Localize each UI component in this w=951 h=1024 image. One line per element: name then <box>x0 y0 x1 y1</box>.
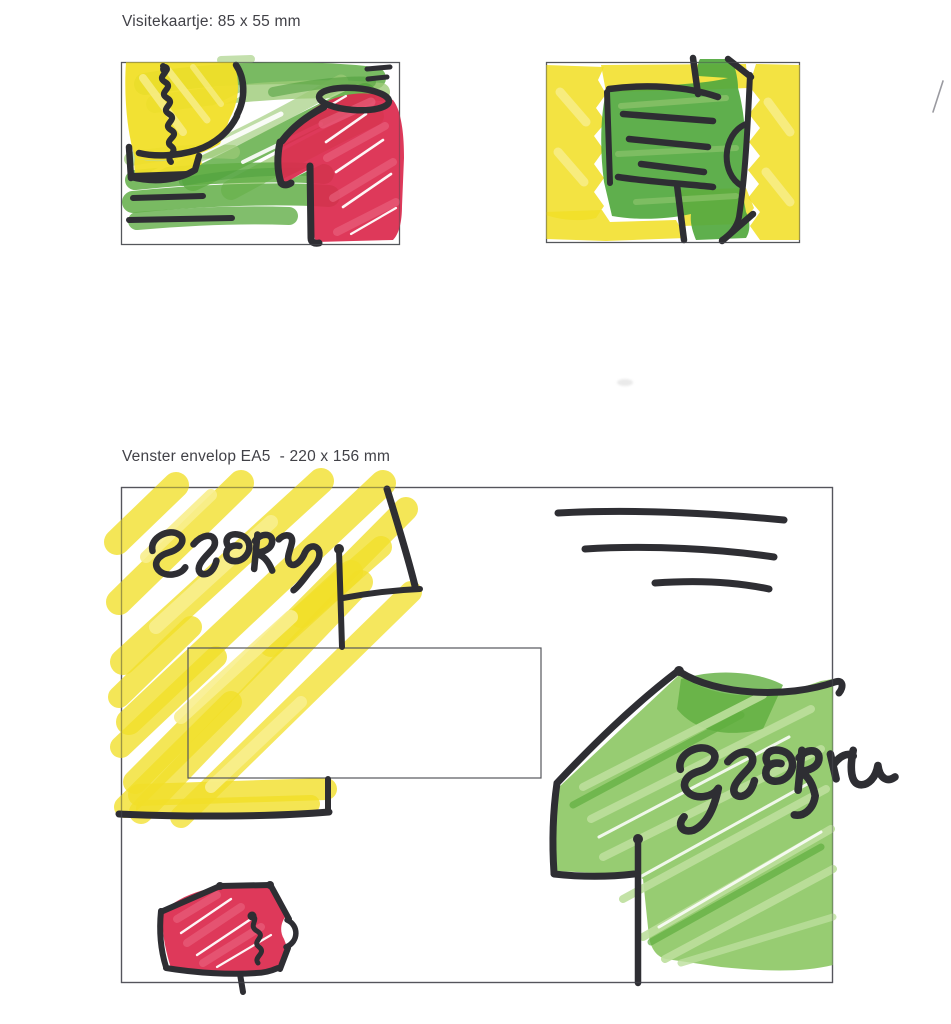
business-card-size-label: Visitekaartje: 85 x 55 mm <box>122 13 301 31</box>
red-tshirt-small-icon <box>160 881 296 992</box>
envelope-size-label: Venster envelop EA5 - 220 x 156 mm <box>122 448 390 466</box>
scan-smudge <box>617 379 633 386</box>
scanned-sketch-page: { "labels": { "business_card": "Visiteka… <box>0 0 951 1024</box>
business-card-sketch-front <box>121 62 400 245</box>
green-tshirt-icon <box>601 58 753 241</box>
address-lines <box>558 511 784 589</box>
envelope-sketch <box>121 487 833 983</box>
business-card-sketch-back <box>546 62 800 243</box>
scan-slash-mark <box>925 78 951 116</box>
